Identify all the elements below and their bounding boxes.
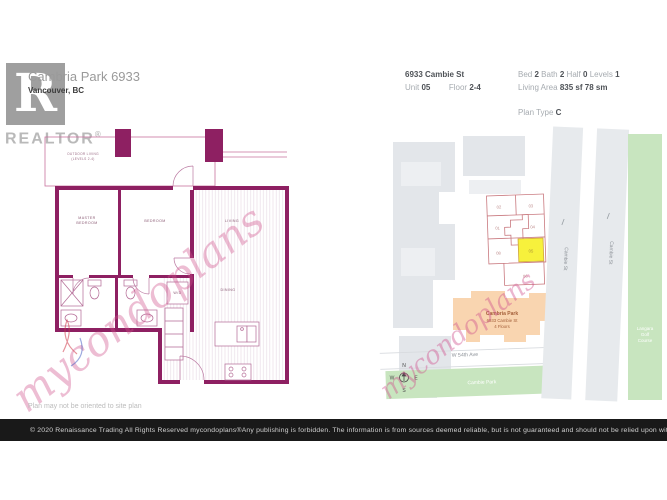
- half-value: 0: [583, 70, 587, 79]
- title-block: Cambria Park 6933 Vancouver, BC: [28, 69, 140, 95]
- levels-value: 1: [615, 70, 619, 79]
- unit-label: Unit: [405, 83, 419, 92]
- cambie-park-label: Cambie Park: [467, 379, 497, 386]
- master-bedroom-label: MASTER: [78, 216, 95, 220]
- balcony-post: [115, 129, 131, 157]
- cambie-streets: Cambie St Cambie St: [541, 126, 629, 401]
- site-unit-08: 08: [496, 250, 502, 255]
- meta-address-block: 6933 Cambie St Unit 05 Floor 2-4: [405, 68, 481, 94]
- cambie-st-label-a: Cambie St: [562, 247, 569, 271]
- langara-strip: Langara Golf Course: [628, 134, 662, 400]
- bath-label: Bath: [541, 70, 557, 79]
- building-floors: 4 Floors: [494, 324, 510, 329]
- langara-label-3: Course: [638, 338, 653, 343]
- langara-label-1: Langara: [637, 326, 654, 331]
- cambie-st-label-b: Cambie St: [607, 241, 614, 265]
- unit-value: 05: [421, 83, 430, 92]
- meta-stats-block: Bed 2 Bath 2 Half 0 Levels 1 Living Area…: [518, 68, 620, 119]
- half-label: Half: [567, 70, 581, 79]
- outdoor-living-label: OUTDOOR LIVING: [67, 152, 99, 156]
- master-bedroom-label2: BEDROOM: [76, 221, 97, 225]
- outdoor-living-sublabel: (LEVELS 2-4): [71, 157, 94, 161]
- site-unit-05: 05: [529, 248, 535, 253]
- living-area-sf: 835 sf: [560, 83, 583, 92]
- bedroom-label: BEDROOM: [144, 219, 165, 223]
- bed-label: Bed: [518, 70, 532, 79]
- site-plan: 02 03 01 04 08 06 05 Cambria Park 6933 C…: [385, 128, 667, 400]
- plan-type-value: C: [556, 108, 562, 117]
- bath-value: 2: [560, 70, 564, 79]
- footer-bar: © 2020 Renaissance Trading All Rights Re…: [0, 419, 667, 441]
- site-unit-03: 03: [528, 203, 534, 208]
- plan-type-label: Plan Type: [518, 108, 553, 117]
- page-title: Cambria Park 6933: [28, 69, 140, 84]
- site-unit-02: 02: [496, 204, 502, 209]
- dining-label: DINING: [221, 288, 236, 292]
- levels-label: Levels: [590, 70, 613, 79]
- bed-value: 2: [534, 70, 538, 79]
- site-unit-04: 04: [530, 224, 536, 229]
- balcony-post: [205, 129, 223, 162]
- footer-disclaimer: Any publishing is forbidden. The informa…: [242, 427, 667, 434]
- cambie-st-strip-b: [585, 128, 629, 401]
- living-area-sm: 78 sm: [585, 83, 608, 92]
- orientation-note: Plan may not be oriented to site plan: [28, 403, 142, 410]
- living-area-label: Living Area: [518, 83, 558, 92]
- langara-green: [628, 134, 662, 400]
- langara-label-2: Golf: [641, 332, 650, 337]
- balcony-outline: [45, 137, 287, 186]
- condo-plan-page: R REALTOR® Cambria Park 6933 Vancouver, …: [0, 0, 667, 500]
- floor-value: 2-4: [469, 83, 481, 92]
- page-subtitle: Vancouver, BC: [28, 86, 140, 95]
- site-unit-01: 01: [495, 225, 501, 230]
- footer-copyright: © 2020 Renaissance Trading All Rights Re…: [30, 427, 242, 434]
- floor-plan: OUTDOOR LIVING (LEVELS 2-4): [25, 122, 305, 400]
- address: 6933 Cambie St: [405, 70, 464, 79]
- floor-label: Floor: [449, 83, 467, 92]
